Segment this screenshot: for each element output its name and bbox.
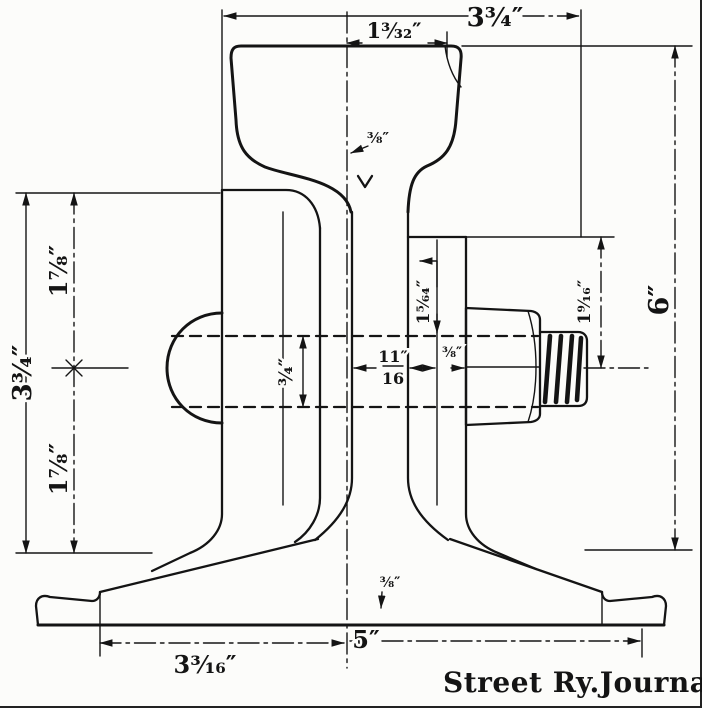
rail-base-left-lip xyxy=(36,592,100,625)
credit-text: Street Ry.Journal xyxy=(443,666,702,699)
bolt-threads xyxy=(545,336,581,402)
rail-base-left-slope xyxy=(100,539,318,592)
dim-head-gap-leader xyxy=(351,146,368,153)
dim-label-right-height: 6″ xyxy=(644,285,675,316)
dim-label-bolt-hole: ¾″ xyxy=(275,357,297,386)
dim-label-web-den: 16 xyxy=(382,369,404,388)
dim-label-web-num: 11″ xyxy=(378,347,407,366)
rail-head-outline xyxy=(231,46,461,212)
dim-label-bolt-upper: 1⁵⁄₆₄″ xyxy=(414,279,434,324)
rail-base-right-lip xyxy=(602,592,666,625)
dim-label-base-left: 3³⁄₁₆″ xyxy=(174,650,237,679)
dim-label-plate-gap: ⅜″ xyxy=(442,345,462,361)
dim-label-left-upper: 1⅞″ xyxy=(44,245,73,298)
dim-label-left-overall: 3¾″ xyxy=(8,345,38,402)
dim-label-base-center: 5″ xyxy=(352,625,380,654)
rail-joint-drawing: 3¾″ 1³⁄₃₂″ 6″ 3¾″ 1⅞″ 1⅞″ ⅜″ ¾″ 11″ 16 1… xyxy=(0,0,702,708)
drawing-svg: 3¾″ 1³⁄₃₂″ 6″ 3¾″ 1⅞″ 1⅞″ ⅜″ ¾″ 11″ 16 1… xyxy=(0,0,702,708)
dim-label-base-web: ⅜″ xyxy=(380,575,401,591)
splice-channel-left-inner xyxy=(295,228,320,542)
dim-label-top-head: 1³⁄₃₂″ xyxy=(366,18,421,43)
dim-label-top-overall: 3¾″ xyxy=(467,3,524,33)
dim-label-left-lower: 1⅞″ xyxy=(44,443,73,496)
dim-base-web-leader xyxy=(381,592,382,608)
dim-label-bolt-center: 1⁹⁄₁₆″ xyxy=(575,279,595,324)
rail-base-right-slope xyxy=(450,539,602,592)
dim-label-head-gap: ⅜″ xyxy=(367,129,390,147)
splice-channel-left-outer xyxy=(152,190,222,571)
splice-bar-right-outer xyxy=(466,237,536,569)
rail-head-notch xyxy=(358,176,372,187)
splice-channel-left-top xyxy=(222,190,320,228)
